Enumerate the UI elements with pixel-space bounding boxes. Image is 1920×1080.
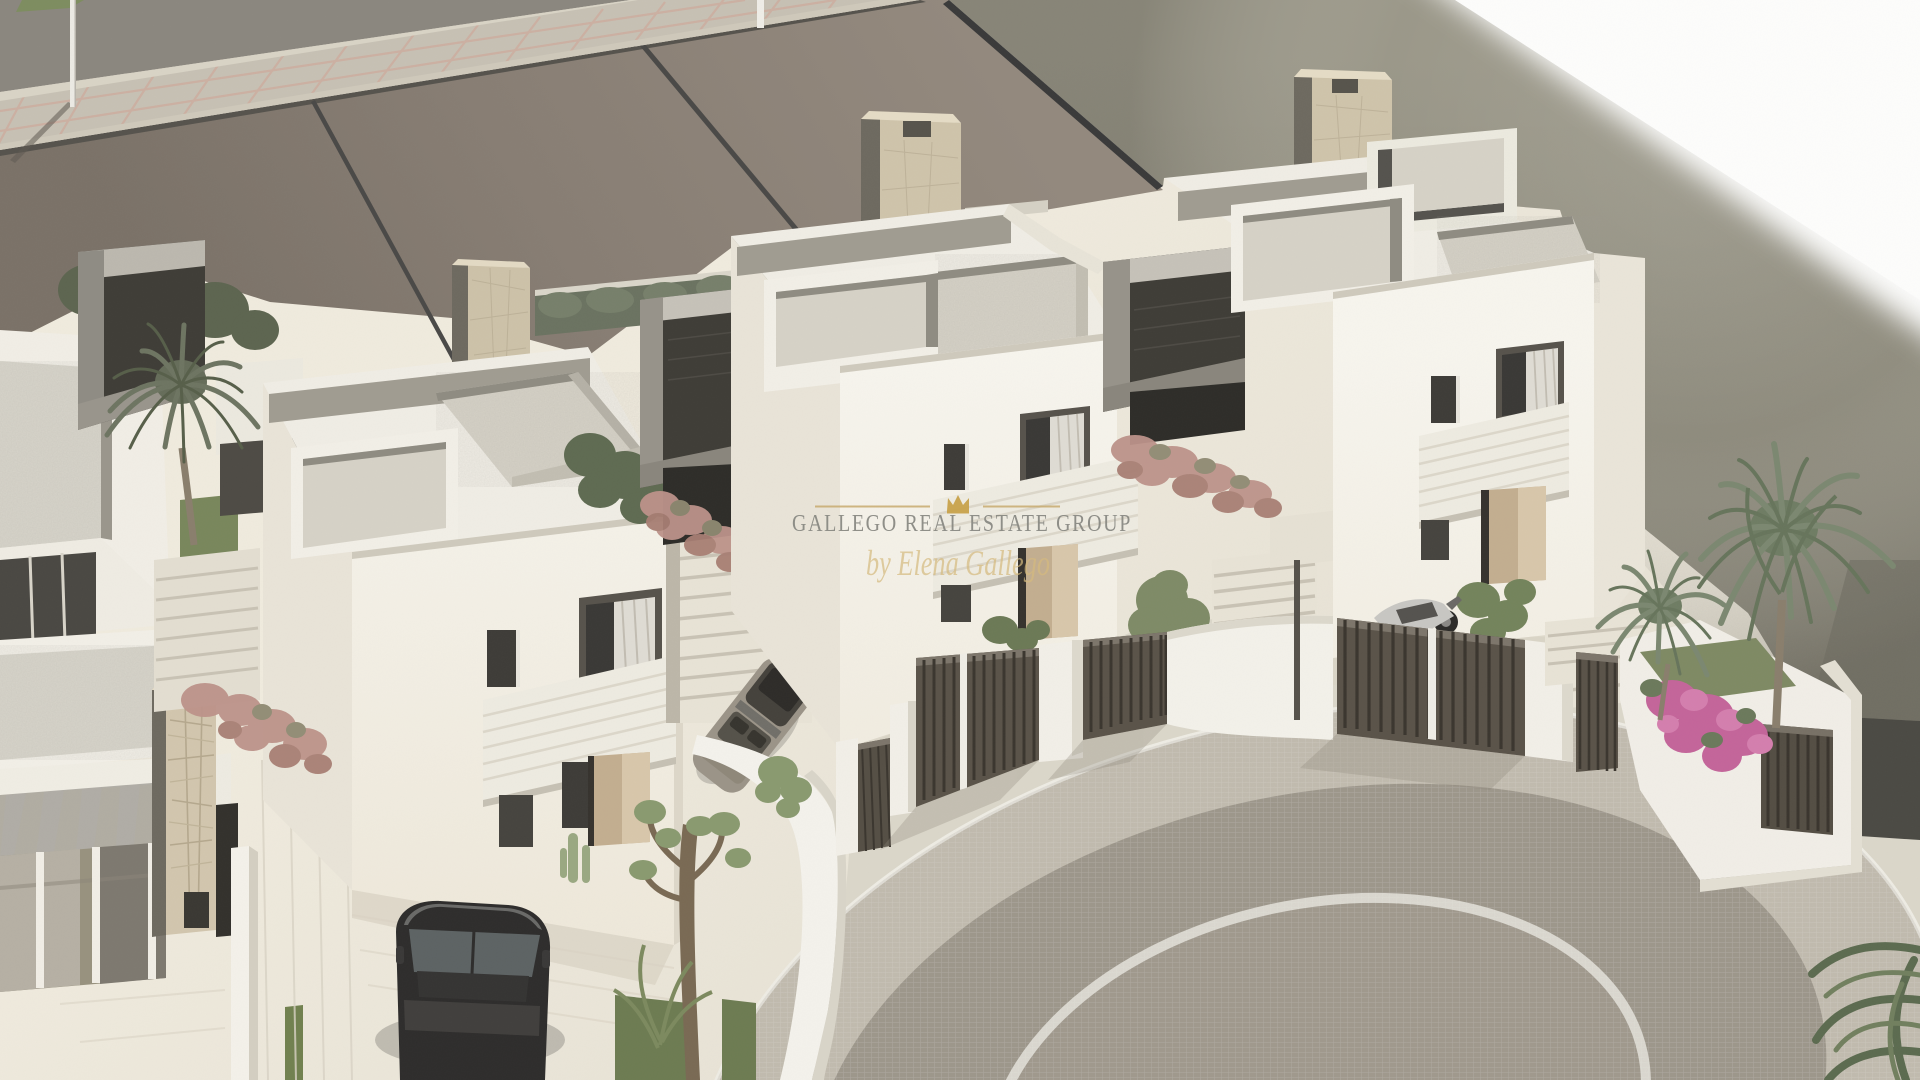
svg-text:GALLEGO REAL ESTATE GROUP: GALLEGO REAL ESTATE GROUP bbox=[792, 510, 1132, 537]
svg-text:by Elena Gallego: by Elena Gallego bbox=[866, 543, 1050, 583]
